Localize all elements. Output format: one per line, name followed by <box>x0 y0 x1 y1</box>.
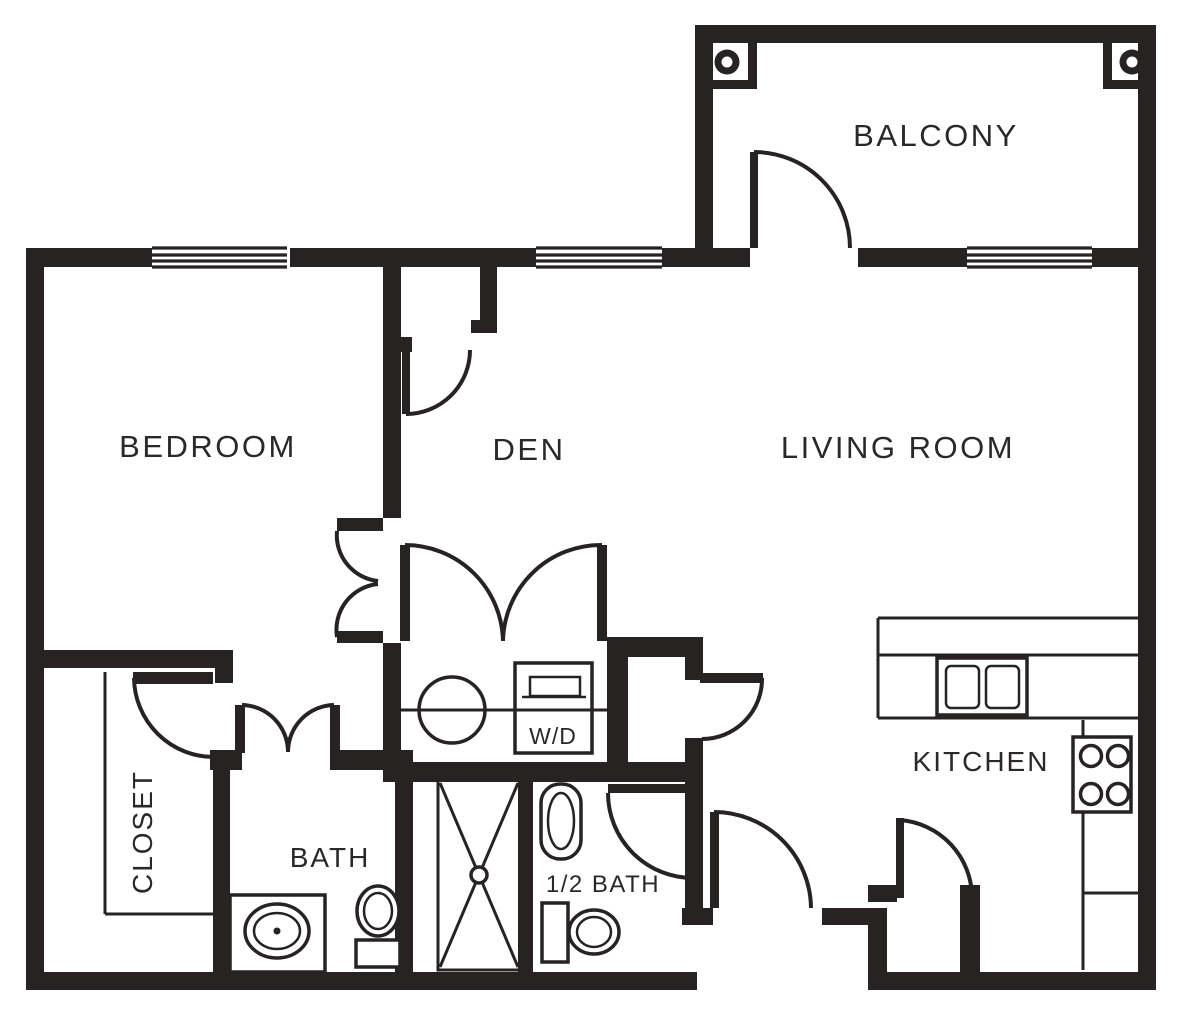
living-room-window <box>967 248 1092 267</box>
half-bath-door <box>608 784 693 878</box>
room-label-living-room: LIVING ROOM <box>781 430 1015 465</box>
bath-double-doors <box>235 705 340 753</box>
den-door <box>402 350 470 414</box>
half-bath-sink <box>541 784 581 859</box>
room-label-bedroom: BEDROOM <box>119 429 297 464</box>
room-label-balcony: BALCONY <box>853 118 1019 153</box>
balcony-column-left <box>715 50 740 75</box>
room-label-den: DEN <box>493 432 566 467</box>
shower <box>438 780 520 970</box>
den-window <box>536 248 662 267</box>
laundry-bifold-doors <box>400 545 607 641</box>
bedroom-window <box>152 248 287 267</box>
balcony-column-right <box>1120 50 1145 75</box>
room-label-closet: CLOSET <box>127 770 158 894</box>
stove <box>1073 737 1131 812</box>
shower-drain <box>471 867 487 883</box>
floor-plan-page: BALCONY BEDROOM DEN LIVING ROOM KITCHEN … <box>0 0 1186 1021</box>
bath-vanity <box>230 895 325 972</box>
entry-door <box>710 812 811 908</box>
kitchen-sink <box>937 658 1027 715</box>
balcony-door <box>750 152 850 248</box>
room-label-bath: BATH <box>290 842 371 873</box>
room-label-kitchen: KITCHEN <box>913 746 1050 777</box>
bath-toilet <box>356 886 400 967</box>
bedroom-french-doors <box>336 518 383 643</box>
washer-dryer-label: W/D <box>529 723 577 749</box>
sink-drain <box>274 928 281 935</box>
half-bath-toilet <box>542 903 619 962</box>
closet-door <box>133 672 214 757</box>
walls <box>26 25 1156 990</box>
floor-plan: BALCONY BEDROOM DEN LIVING ROOM KITCHEN … <box>0 0 1186 1021</box>
room-label-half-bath: 1/2 BATH <box>546 871 660 898</box>
closet-shelving <box>105 672 213 914</box>
coat-closet-door <box>700 673 763 739</box>
